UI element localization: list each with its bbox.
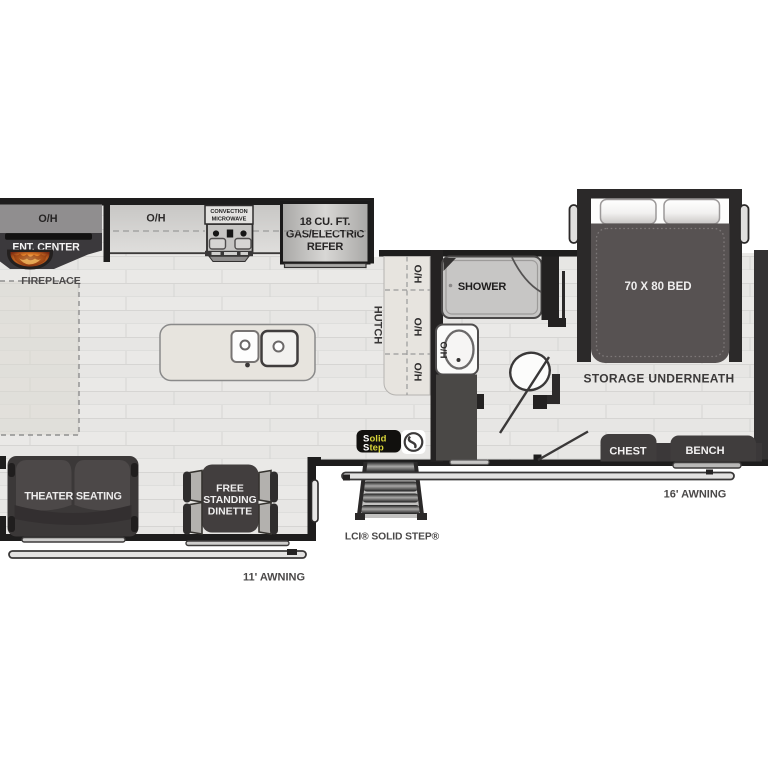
svg-text:CONVECTION: CONVECTION (210, 209, 247, 215)
svg-text:FREE: FREE (216, 484, 244, 495)
svg-text:MICROWAVE: MICROWAVE (212, 217, 247, 223)
svg-text:18 CU. FT.: 18 CU. FT. (300, 216, 351, 228)
svg-text:DINETTE: DINETTE (208, 507, 253, 518)
svg-text:11' AWNING: 11' AWNING (243, 572, 305, 584)
svg-text:THEATER SEATING: THEATER SEATING (24, 491, 121, 503)
svg-text:O/H: O/H (38, 213, 57, 225)
svg-text:O/H: O/H (412, 363, 424, 382)
svg-text:REFER: REFER (307, 241, 344, 253)
svg-text:BENCH: BENCH (685, 445, 724, 457)
svg-text:O/H: O/H (438, 342, 449, 359)
svg-text:O/H: O/H (146, 213, 165, 225)
svg-text:STANDING: STANDING (203, 495, 257, 506)
svg-text:70 X 80 BED: 70 X 80 BED (624, 281, 691, 293)
svg-text:O/H: O/H (412, 318, 424, 337)
svg-text:SHOWER: SHOWER (458, 281, 507, 293)
svg-text:S: S (363, 443, 369, 454)
svg-text:tep: tep (370, 443, 384, 454)
svg-text:FIREPLACE: FIREPLACE (21, 275, 81, 287)
svg-text:LCI® SOLID STEP®: LCI® SOLID STEP® (345, 532, 440, 543)
svg-text:HUTCH: HUTCH (372, 306, 384, 345)
svg-text:STORAGE UNDERNEATH: STORAGE UNDERNEATH (584, 372, 735, 386)
svg-text:GAS/ELECTRIC: GAS/ELECTRIC (286, 229, 365, 241)
svg-text:O/H: O/H (412, 265, 424, 284)
svg-text:16' AWNING: 16' AWNING (664, 489, 727, 501)
svg-text:CHEST: CHEST (609, 446, 647, 458)
